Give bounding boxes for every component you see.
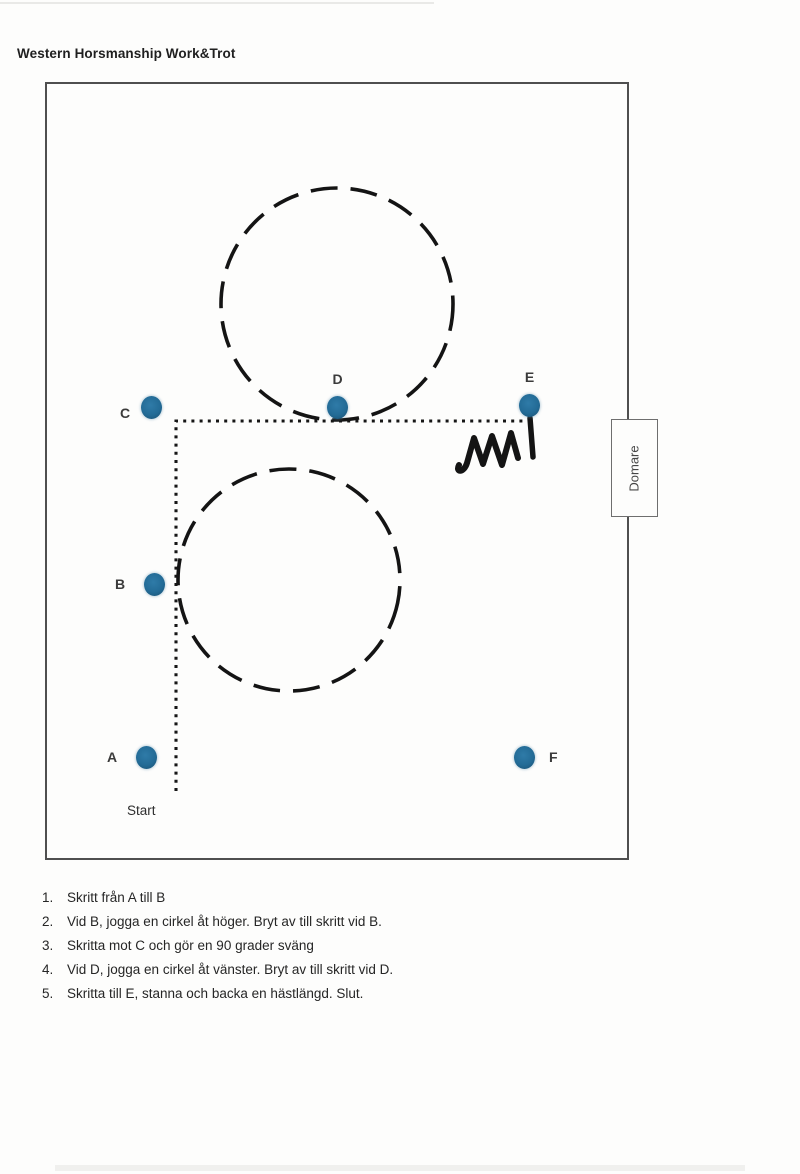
marker-label-f: F xyxy=(549,746,558,769)
marker-dot-e xyxy=(519,394,540,417)
judge-box-label: Domare xyxy=(627,445,642,491)
instruction-number: 5. xyxy=(42,982,67,1006)
judge-box: Domare xyxy=(611,419,658,517)
instruction-text: Skritt från A till B xyxy=(67,886,602,910)
marker-dot-f xyxy=(514,746,535,769)
instruction-number: 1. xyxy=(42,886,67,910)
marker-label-b: B xyxy=(115,573,125,596)
instruction-list: 1. Skritt från A till B 2. Vid B, jogga … xyxy=(42,886,602,1006)
instruction-item: 5. Skritta till E, stanna och backa en h… xyxy=(42,982,602,1006)
instruction-item: 4. Vid D, jogga en cirkel åt vänster. Br… xyxy=(42,958,602,982)
instruction-item: 3. Skritta mot C och gör en 90 grader sv… xyxy=(42,934,602,958)
marker-label-e: E xyxy=(519,366,540,389)
marker-label-c: C xyxy=(120,402,130,425)
instruction-item: 2. Vid B, jogga en cirkel åt höger. Bryt… xyxy=(42,910,602,934)
marker-label-d: D xyxy=(327,368,348,391)
marker-dot-d xyxy=(327,396,348,419)
pattern-sheet: Western Horsmanship Work&Trot A B C D E … xyxy=(0,0,800,1174)
instruction-text: Skritta till E, stanna och backa en häst… xyxy=(67,982,602,1006)
instruction-text: Skritta mot C och gör en 90 grader sväng xyxy=(67,934,602,958)
instruction-item: 1. Skritt från A till B xyxy=(42,886,602,910)
marker-dot-a xyxy=(136,746,157,769)
instruction-text: Vid D, jogga en cirkel åt vänster. Bryt … xyxy=(67,958,602,982)
marker-dot-b xyxy=(144,573,165,596)
marker-label-a: A xyxy=(107,746,117,769)
instruction-number: 3. xyxy=(42,934,67,958)
jog-circle-right-at-b xyxy=(157,448,420,711)
travel-path-dotted xyxy=(176,421,524,791)
instruction-number: 2. xyxy=(42,910,67,934)
stop-mark-icon xyxy=(530,418,533,457)
instruction-number: 4. xyxy=(42,958,67,982)
backup-zigzag-icon xyxy=(458,433,518,471)
instruction-text: Vid B, jogga en cirkel åt höger. Bryt av… xyxy=(67,910,602,934)
marker-dot-c xyxy=(141,396,162,419)
start-label: Start xyxy=(127,803,156,818)
